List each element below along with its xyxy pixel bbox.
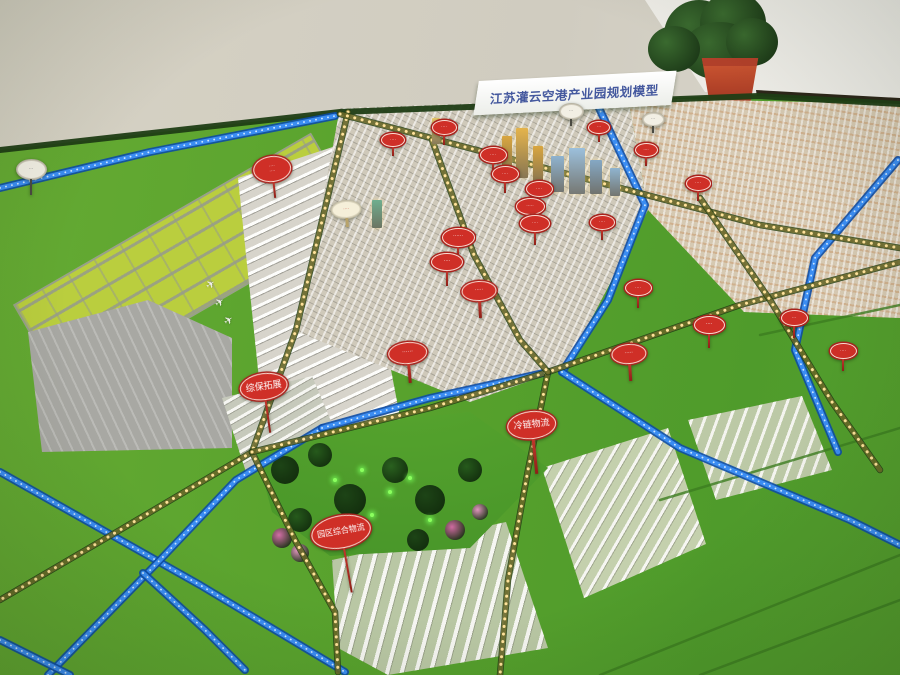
sign-post xyxy=(343,547,353,592)
red-oval-signpost: ···· xyxy=(625,280,652,308)
sign-post xyxy=(652,126,655,133)
pale-oval-signpost: ··· xyxy=(643,113,664,133)
sign-post xyxy=(272,182,276,198)
tree xyxy=(291,544,309,562)
sign-post xyxy=(443,135,446,145)
sign-label: ····· xyxy=(610,343,646,365)
red-oval-signpost: ···· xyxy=(694,316,725,348)
sign-post xyxy=(446,271,449,286)
sign-label: ···· xyxy=(480,147,507,163)
scale-model-photo: ✈✈✈ 江苏灌云空港产业园规划模型 ···· ·················… xyxy=(0,0,900,675)
sign-label: ···· xyxy=(590,215,615,230)
sign-label: ···· xyxy=(625,280,652,296)
sign-label: ···· xyxy=(520,215,550,232)
sign-label: ···· ···· xyxy=(252,154,293,184)
park-light xyxy=(333,478,337,482)
red-oval-signpost: ···· xyxy=(520,215,550,245)
red-oval-signpost: ···· xyxy=(830,343,857,371)
pale-oval-signpost: ··· xyxy=(17,160,46,195)
sign-post xyxy=(478,301,481,318)
sign-post xyxy=(708,334,711,348)
tower-building xyxy=(533,146,543,184)
tree xyxy=(472,504,488,520)
tree xyxy=(445,520,465,540)
red-oval-signpost: ······ xyxy=(387,340,429,384)
park-light xyxy=(370,513,374,517)
tower-building xyxy=(590,160,602,194)
red-oval-signpost: ··· xyxy=(588,121,610,142)
red-oval-signpost: ···· xyxy=(432,120,457,145)
sign-label: ···· xyxy=(526,181,553,197)
sign-post xyxy=(637,296,640,308)
red-oval-signpost: 综保拓展 xyxy=(238,369,294,435)
sign-label: ···· xyxy=(686,176,711,191)
red-oval-signpost: ····· xyxy=(461,280,498,319)
sign-post xyxy=(345,217,348,226)
sign-label: ··· xyxy=(643,113,664,126)
tower-building xyxy=(372,200,382,228)
tree xyxy=(458,458,482,482)
tree xyxy=(382,457,408,483)
sign-label: ······ xyxy=(442,228,475,247)
sign-post xyxy=(598,134,601,142)
sign-label: 综保拓展 xyxy=(238,369,289,402)
sign-label: ······ xyxy=(387,340,428,365)
sign-label: ····· xyxy=(461,280,497,302)
sign-label: ···· xyxy=(431,253,463,271)
tower-building xyxy=(569,148,585,194)
pale-oval-signpost: ···· xyxy=(331,200,362,228)
park-light xyxy=(360,468,364,472)
sign-label: ··· xyxy=(17,160,46,179)
sign-post xyxy=(601,230,604,240)
park-light xyxy=(408,476,412,480)
sign-label: ··· xyxy=(560,104,583,119)
sign-label: ··· xyxy=(781,310,808,326)
plant-foliage xyxy=(648,26,700,72)
sign-post xyxy=(842,359,845,371)
sign-label: ··· xyxy=(588,121,610,134)
sign-post xyxy=(645,157,648,166)
tower-building xyxy=(551,156,564,192)
sign-label: ···· xyxy=(331,200,361,219)
sign-post xyxy=(570,119,573,126)
tree xyxy=(308,443,332,467)
tower-building xyxy=(610,168,620,196)
sign-label: ···· xyxy=(492,166,519,182)
sign-label: ···· xyxy=(381,133,405,147)
tree xyxy=(272,528,292,548)
sign-label: ···· xyxy=(635,143,658,157)
sign-label: ···· xyxy=(694,316,725,334)
red-oval-signpost: ···· xyxy=(590,215,615,240)
sign-post xyxy=(392,147,395,156)
sign-post xyxy=(30,179,33,195)
sign-post xyxy=(793,326,796,338)
park-light xyxy=(428,518,432,522)
red-oval-signpost: ···· xyxy=(686,176,711,201)
tree xyxy=(407,529,429,551)
sign-label: 冷链物流 xyxy=(505,409,557,442)
sign-label: ····· xyxy=(516,198,545,215)
red-oval-signpost: ···· xyxy=(381,133,405,156)
red-oval-signpost: ··· xyxy=(781,310,808,338)
red-oval-signpost: ···· ···· xyxy=(252,154,294,200)
sign-post xyxy=(264,399,271,432)
tree xyxy=(415,485,445,515)
sign-post xyxy=(697,191,700,201)
sign-post xyxy=(628,364,632,381)
red-oval-signpost: ···· xyxy=(492,166,519,193)
tree xyxy=(271,456,299,484)
red-oval-signpost: ····· xyxy=(610,343,647,382)
sign-label: ···· xyxy=(830,343,857,359)
sign-post xyxy=(407,364,411,383)
pale-oval-signpost: ··· xyxy=(560,104,583,126)
red-oval-signpost: ···· xyxy=(635,143,658,166)
sign-post xyxy=(534,232,537,245)
sign-post xyxy=(531,439,537,474)
sign-label: ···· xyxy=(432,120,457,135)
sign-post xyxy=(504,182,507,193)
park-light xyxy=(388,490,392,494)
red-oval-signpost: 冷链物流 xyxy=(505,409,560,477)
red-oval-signpost: ···· xyxy=(431,253,463,286)
